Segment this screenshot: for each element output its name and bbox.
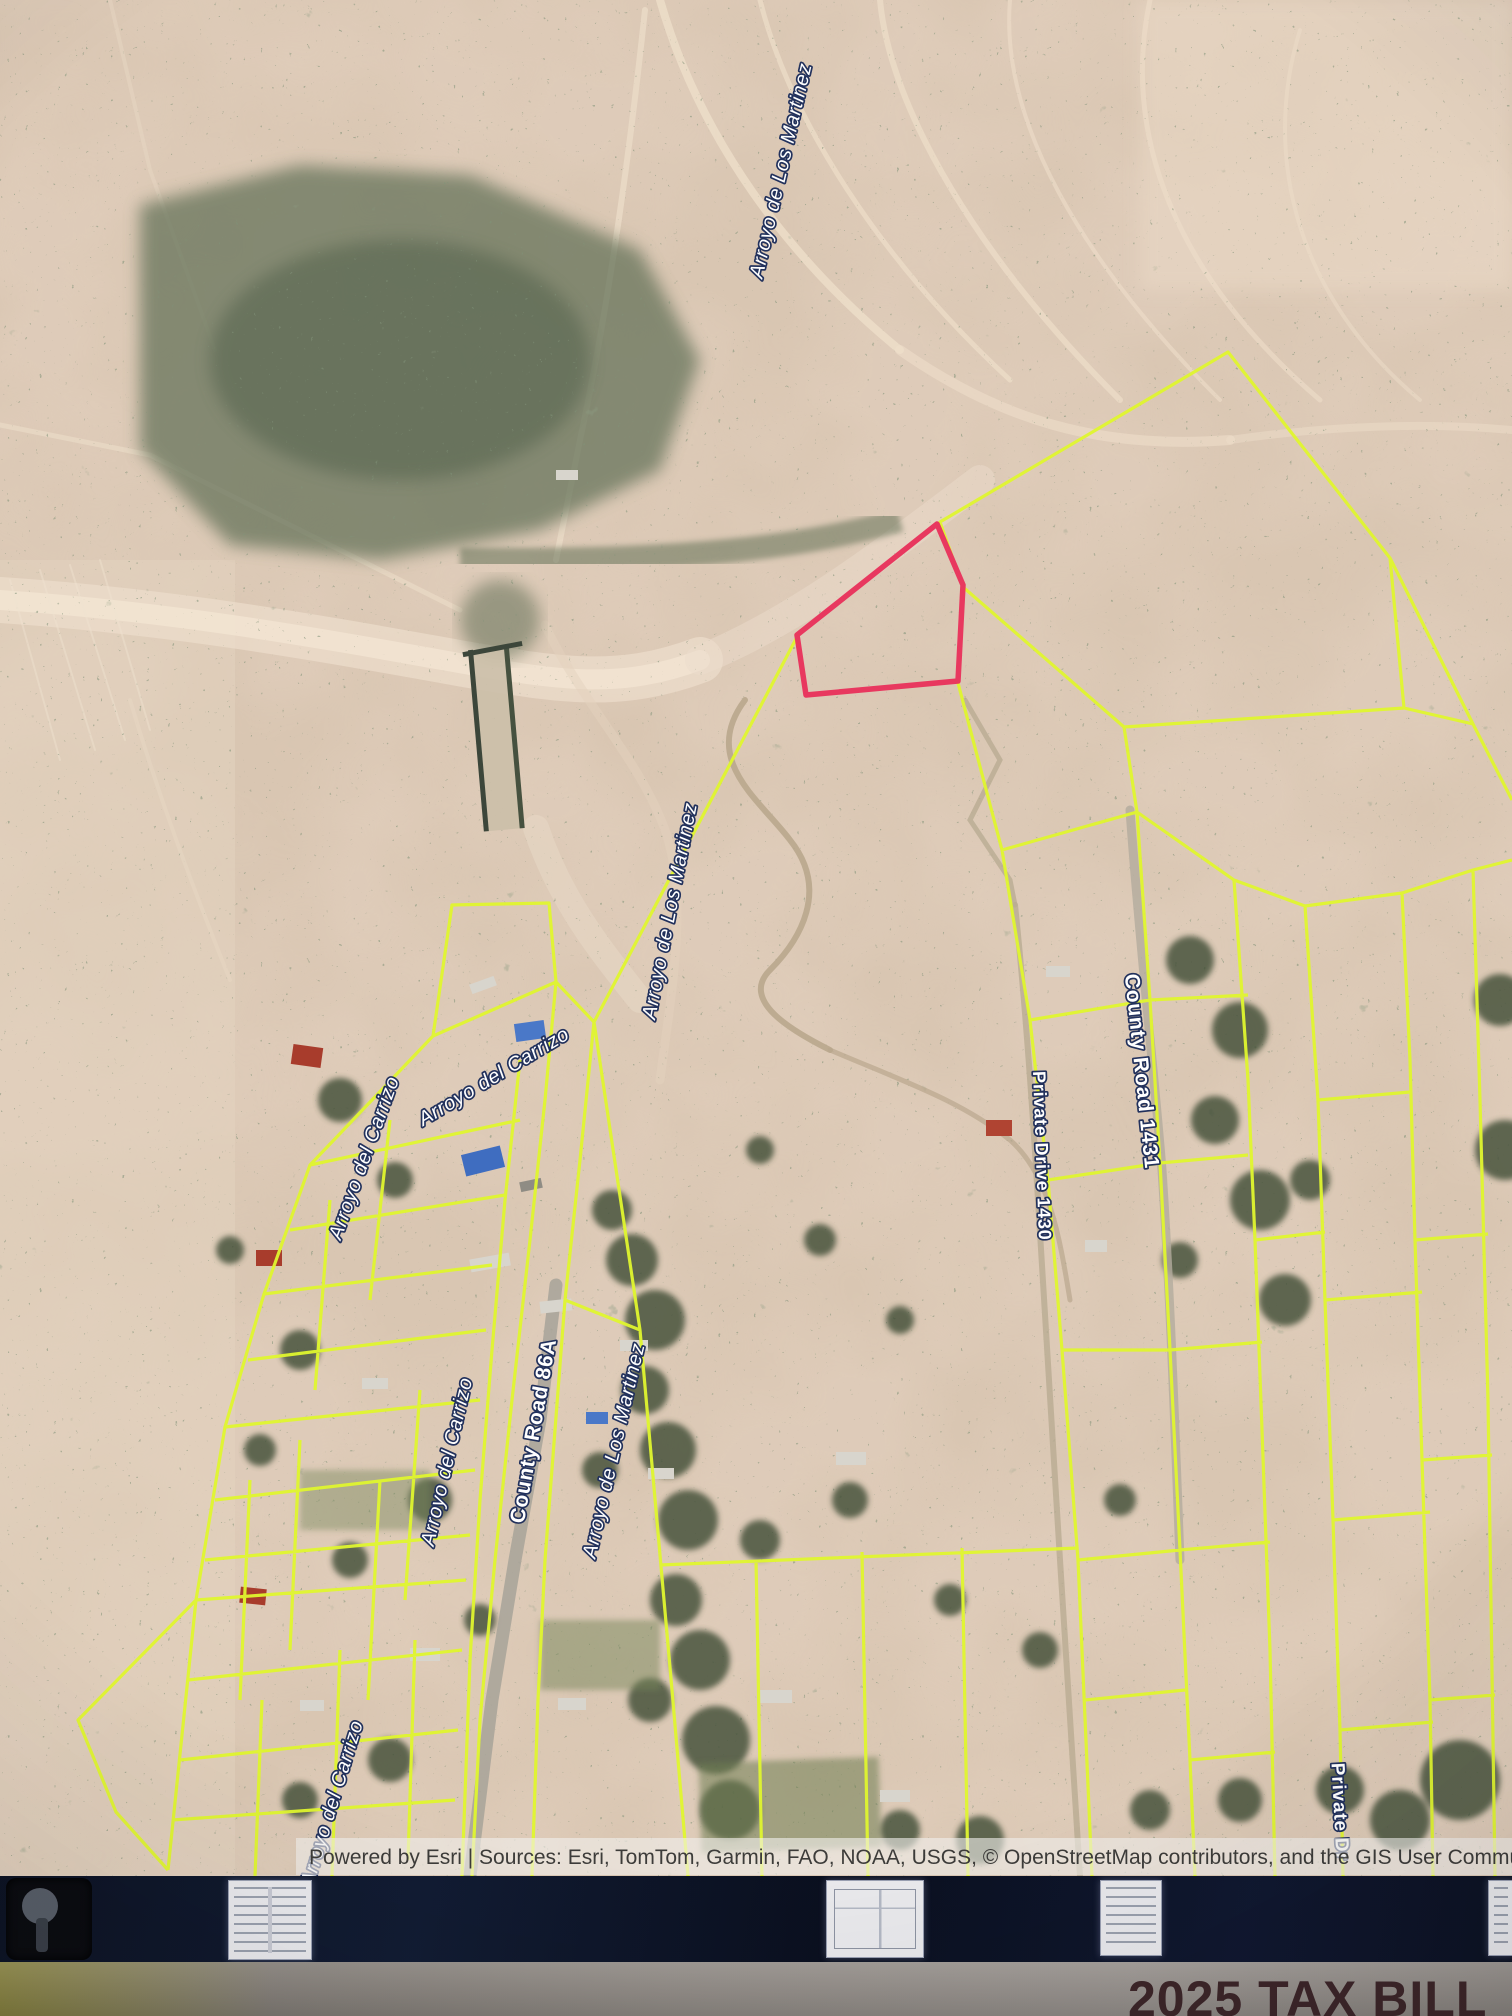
document-thumbnail[interactable] <box>826 1880 924 1958</box>
attribution-text: Powered by Esri | Sources: Esri, TomTom,… <box>309 1846 1512 1869</box>
document-thumbnail[interactable] <box>1488 1880 1512 1956</box>
tax-bill-paper: 2025 TAX BILL <box>0 1962 1512 2016</box>
desk-object <box>6 1878 92 1960</box>
screen-bottom-strip <box>0 1876 1512 1962</box>
attribution-bar: Powered by Esri | Sources: Esri, TomTom,… <box>296 1838 1512 1875</box>
map-canvas[interactable]: Arroyo de Los Martinez Arroyo de Los Mar… <box>0 0 1512 1876</box>
tax-bill-title: 2025 TAX BILL <box>1128 1970 1487 2016</box>
document-thumbnail[interactable] <box>1100 1880 1162 1956</box>
photographed-monitor: Arroyo de Los Martinez Arroyo de Los Mar… <box>0 0 1512 2016</box>
desk-object-stem <box>36 1918 48 1952</box>
document-thumbnail[interactable] <box>228 1880 312 1960</box>
